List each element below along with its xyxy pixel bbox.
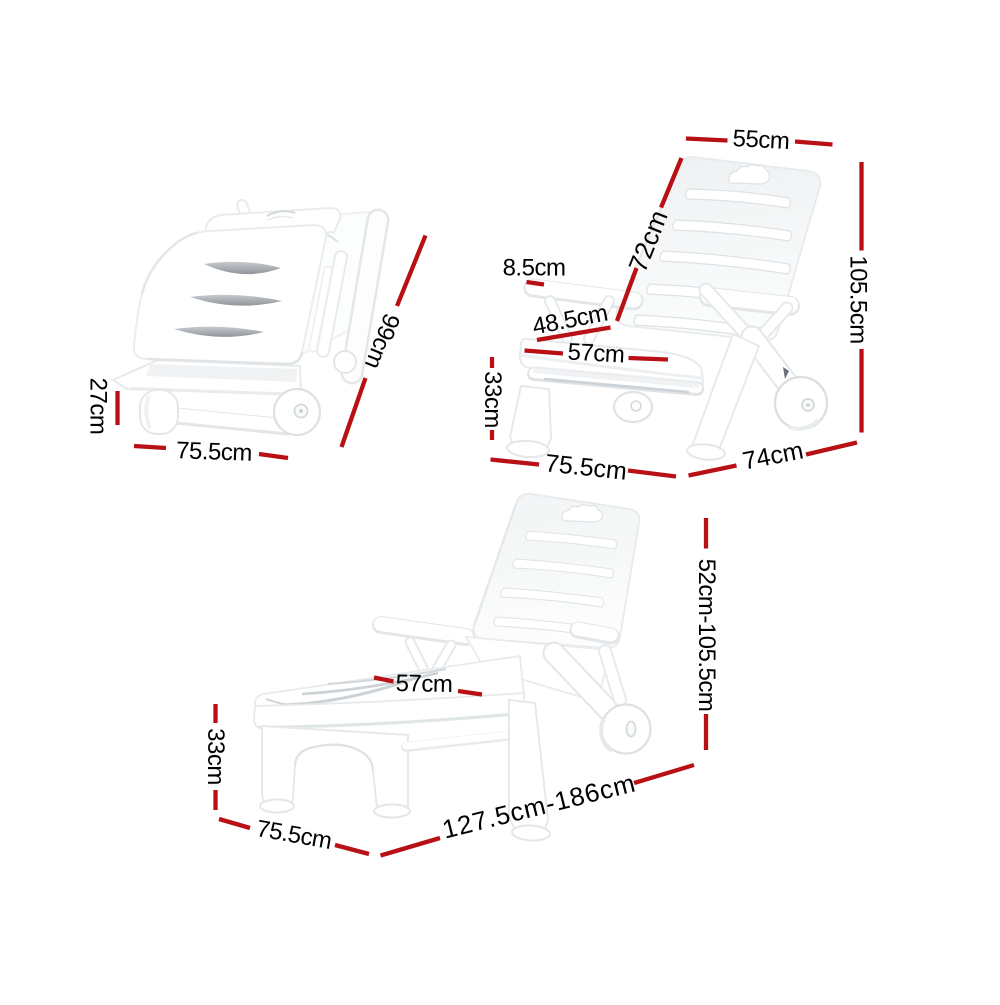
- svg-text:57cm: 57cm: [567, 339, 625, 369]
- svg-text:33cm: 33cm: [479, 371, 506, 428]
- svg-text:8.5cm: 8.5cm: [503, 255, 566, 282]
- svg-text:105.5cm: 105.5cm: [845, 255, 872, 344]
- svg-text:27cm: 27cm: [85, 378, 112, 435]
- svg-text:57cm: 57cm: [395, 670, 452, 698]
- svg-text:33cm: 33cm: [202, 728, 229, 785]
- svg-text:75.5cm: 75.5cm: [176, 437, 253, 467]
- svg-text:55cm: 55cm: [732, 125, 790, 155]
- svg-text:52cm-105.5cm: 52cm-105.5cm: [693, 559, 720, 712]
